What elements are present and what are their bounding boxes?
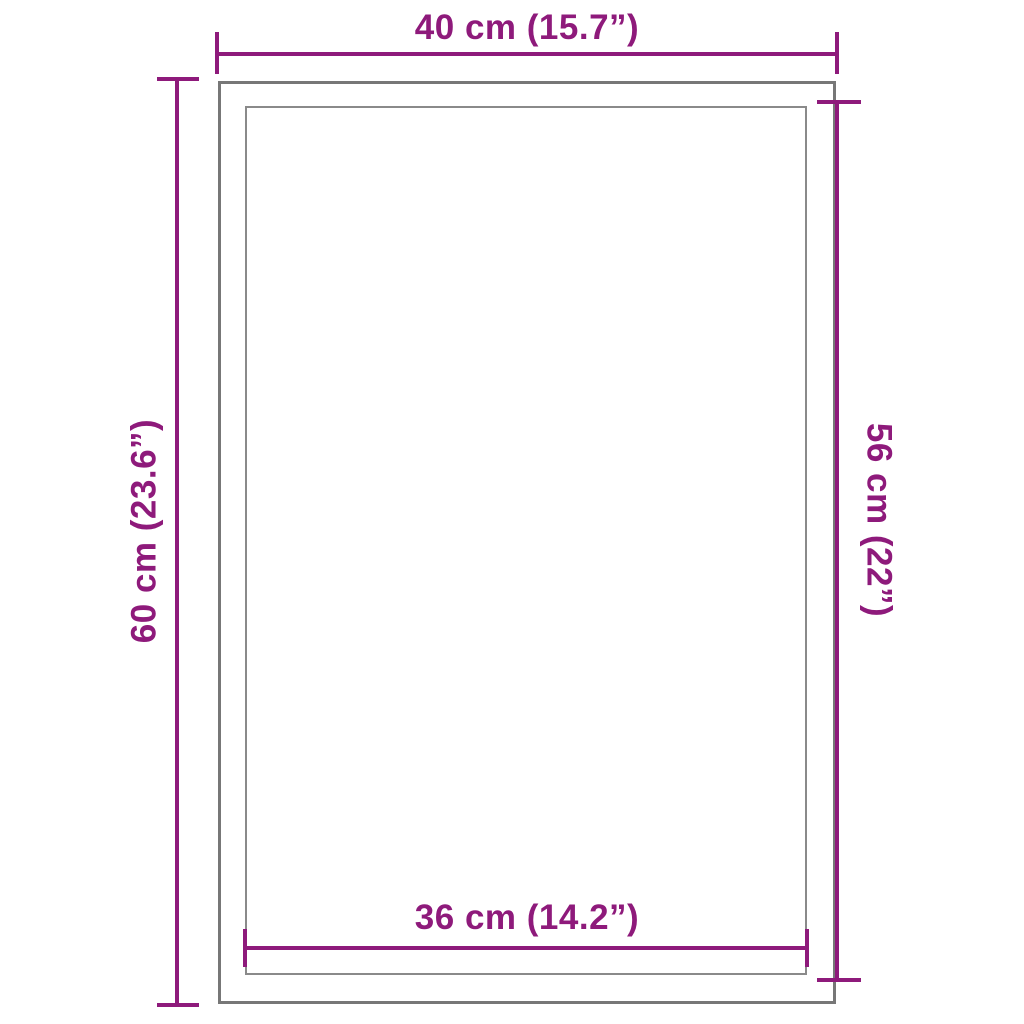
top-dimension-end-tick bbox=[835, 32, 839, 74]
top-dimension-label: 40 cm (15.7”) bbox=[415, 10, 639, 45]
top-dimension-start-tick bbox=[215, 32, 219, 74]
right-dimension-label: 56 cm (22”) bbox=[862, 423, 897, 617]
inner-frame bbox=[245, 106, 807, 975]
top-dimension-line bbox=[215, 52, 839, 56]
right-dimension-line bbox=[835, 100, 839, 982]
dimension-diagram: 40 cm (15.7”) 60 cm (23.6”) 56 cm (22”) … bbox=[0, 0, 1024, 1024]
right-dimension-end-tick bbox=[817, 978, 861, 982]
bottom-dimension-label: 36 cm (14.2”) bbox=[415, 900, 639, 935]
bottom-dimension-line bbox=[243, 946, 809, 950]
bottom-dimension-start-tick bbox=[243, 929, 247, 967]
left-dimension-line bbox=[175, 77, 179, 1007]
left-dimension-label: 60 cm (23.6”) bbox=[127, 419, 162, 643]
left-dimension-end-tick bbox=[157, 1003, 199, 1007]
right-dimension-start-tick bbox=[817, 100, 861, 104]
bottom-dimension-end-tick bbox=[805, 929, 809, 967]
left-dimension-start-tick bbox=[157, 77, 199, 81]
